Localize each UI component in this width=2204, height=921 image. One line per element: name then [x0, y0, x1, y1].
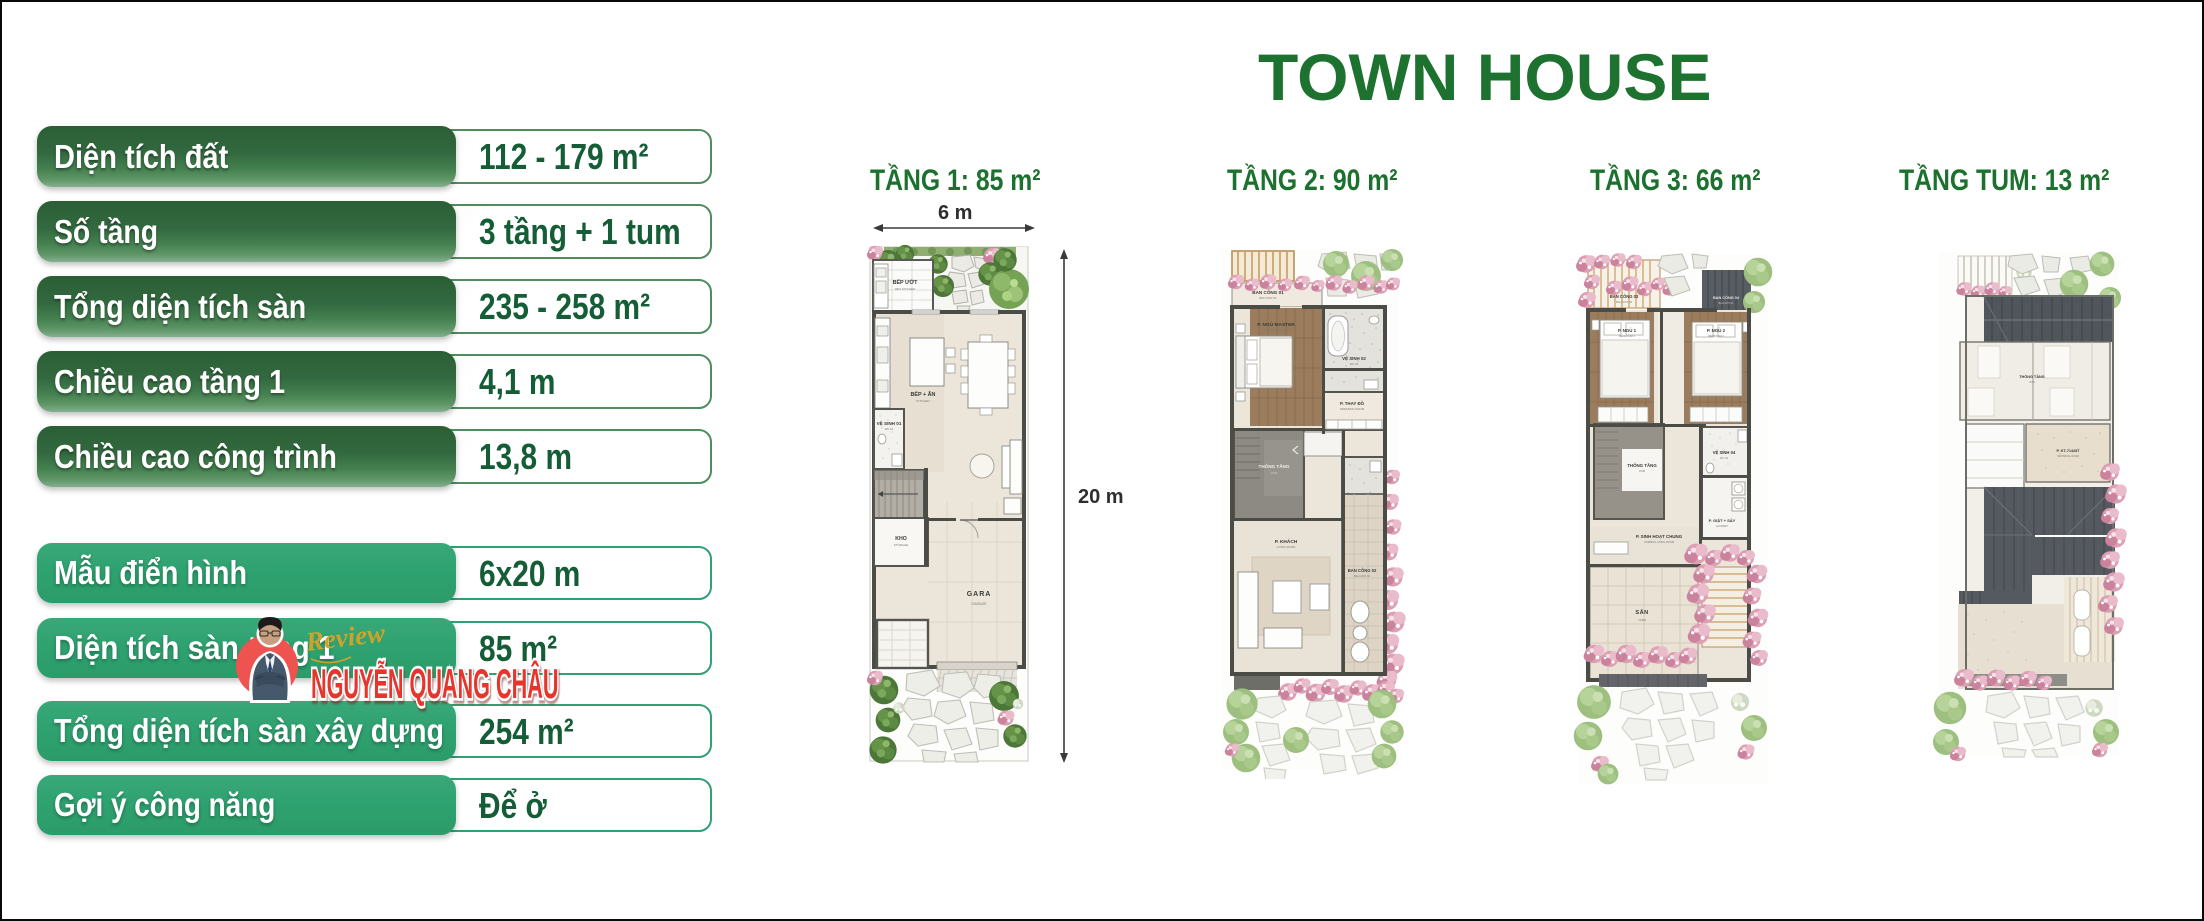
svg-text:BALCONY 02: BALCONY 02: [1354, 574, 1371, 578]
svg-text:P. KHÁCH: P. KHÁCH: [1275, 538, 1298, 545]
svg-text:STORAGE: STORAGE: [894, 543, 909, 547]
svg-text:KHO: KHO: [895, 536, 907, 542]
svg-text:WC.01: WC.01: [885, 427, 894, 431]
svg-text:MASTER BEDROOM: MASTER BEDROOM: [1263, 328, 1291, 332]
svg-text:BEDROOM 1: BEDROOM 1: [1619, 334, 1635, 338]
svg-text:VOID: VOID: [2029, 381, 2035, 384]
svg-text:COMMON LIVING ROOM: COMMON LIVING ROOM: [1644, 540, 1674, 544]
svg-text:WET KITCHEN: WET KITCHEN: [895, 287, 916, 291]
svg-text:P. KT-714287: P. KT-714287: [2057, 449, 2080, 453]
svg-text:WC.02: WC.02: [1350, 362, 1359, 366]
svg-text:VỆ SINH 04: VỆ SINH 04: [1713, 450, 1736, 455]
svg-text:Review: Review: [303, 617, 388, 657]
svg-text:VOID: VOID: [1639, 469, 1645, 473]
svg-text:BALCONY 04: BALCONY 04: [1719, 302, 1734, 305]
svg-text:TECHNICAL ROOM: TECHNICAL ROOM: [2057, 455, 2079, 458]
svg-text:LIVING ROOM: LIVING ROOM: [1277, 545, 1296, 549]
svg-text:P. SINH HOẠT CHUNG: P. SINH HOẠT CHUNG: [1636, 534, 1683, 539]
svg-text:VỆ SINH 02: VỆ SINH 02: [1342, 356, 1366, 361]
svg-text:GARAGE: GARAGE: [971, 602, 987, 606]
svg-text:BALCONY 03: BALCONY 03: [1616, 300, 1633, 304]
svg-text:KITCHEN: KITCHEN: [916, 399, 929, 403]
svg-text:SÂN: SÂN: [1635, 609, 1648, 616]
svg-text:BAN CÔNG 04: BAN CÔNG 04: [1713, 295, 1740, 300]
svg-text:BEDROOM 2: BEDROOM 2: [1708, 334, 1724, 338]
svg-text:BẾP ƯỚT: BẾP ƯỚT: [893, 278, 919, 286]
svg-text:YARD: YARD: [1638, 618, 1647, 622]
svg-text:BAN CÔNG 02: BAN CÔNG 02: [1348, 568, 1377, 573]
svg-text:P. GIẶT + SẤY: P. GIẶT + SẤY: [1709, 518, 1736, 523]
svg-text:BALCONY 01: BALCONY 01: [1259, 296, 1277, 300]
svg-text:LAUNDRY: LAUNDRY: [1716, 524, 1729, 528]
svg-text:P. NGỦ MASTER: P. NGỦ MASTER: [1257, 321, 1295, 328]
svg-text:THÔNG TẦNG: THÔNG TẦNG: [1627, 463, 1657, 468]
svg-text:DRESSING ROOM: DRESSING ROOM: [1340, 407, 1365, 411]
svg-text:GARA: GARA: [967, 591, 992, 598]
svg-text:VOID: VOID: [1271, 471, 1278, 475]
svg-text:BẾP + ĂN: BẾP + ĂN: [911, 391, 936, 398]
svg-text:P. NGỦ 2: P. NGỦ 2: [1707, 328, 1726, 333]
svg-text:P. NGỦ 1: P. NGỦ 1: [1618, 328, 1637, 333]
svg-text:WC.04: WC.04: [1720, 456, 1728, 460]
svg-text:THÔNG TẦNG: THÔNG TẦNG: [2019, 374, 2045, 379]
svg-text:THÔNG TẦNG: THÔNG TẦNG: [1259, 462, 1290, 469]
svg-text:VỆ SINH 01: VỆ SINH 01: [877, 419, 902, 426]
svg-text:NGUYỄN QUANG CHÂU: NGUYỄN QUANG CHÂU: [311, 660, 558, 708]
svg-text:P. THAY ĐỒ: P. THAY ĐỒ: [1340, 401, 1365, 406]
